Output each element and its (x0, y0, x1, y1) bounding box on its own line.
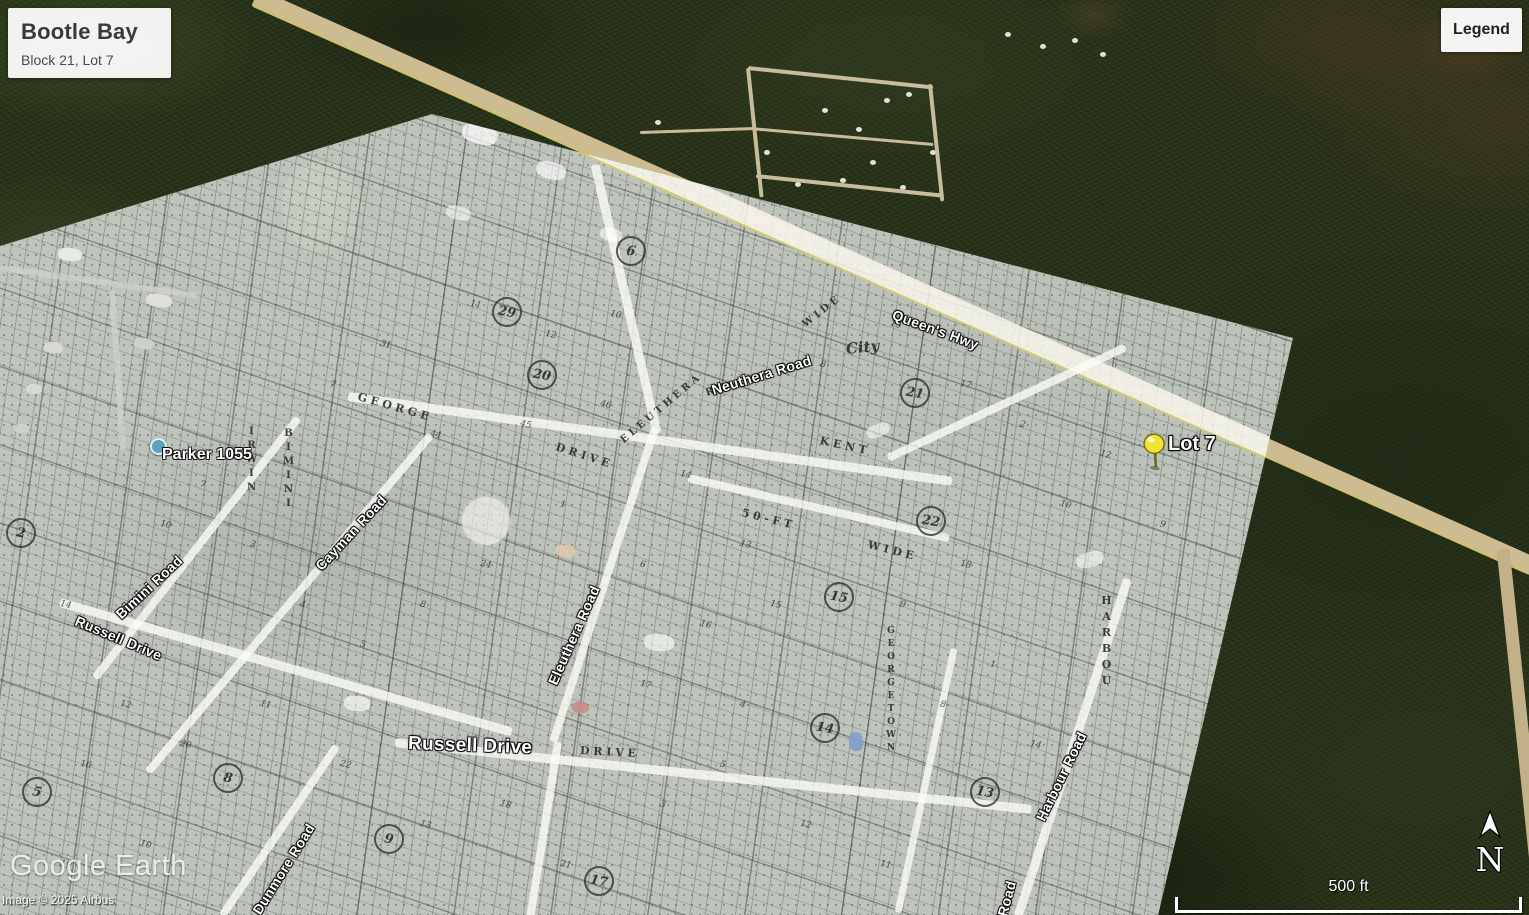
scale-bar-label: 500 ft (1175, 878, 1522, 896)
street-label: Queen's Hwy (890, 306, 981, 352)
street-label: Bimini Road (113, 552, 186, 622)
earth-canvas[interactable]: G E O R G ED R I V EE L E U T H E R AR D… (0, 0, 1529, 915)
street-label: Neuthera Road (710, 352, 814, 398)
pin-label: Lot 7 (1168, 433, 1216, 456)
scale-bar: 500 ft (1175, 878, 1522, 913)
street-label: Road (994, 879, 1019, 915)
street-label: Harbour Road (1033, 729, 1090, 823)
street-label: Russell Drive (408, 733, 533, 759)
street-label: Dunmore Road (249, 821, 318, 915)
north-arrow-icon (1468, 810, 1512, 840)
imagery-copyright: Image © 2025 Airbus (2, 893, 114, 907)
page-title: Bootle Bay (21, 19, 171, 45)
scale-bar-line (1175, 897, 1522, 913)
street-label: Russell Drive (73, 613, 165, 664)
google-earth-watermark: Google Earth (10, 850, 187, 883)
compass-north: N (1468, 810, 1512, 876)
title-card: Bootle Bay Block 21, Lot 7 (8, 8, 171, 78)
legend-button[interactable]: Legend (1441, 8, 1522, 52)
compass-n-label: N (1468, 843, 1512, 876)
page-subtitle: Block 21, Lot 7 (21, 52, 171, 68)
lot7-marker[interactable]: Lot 7 (1140, 432, 1170, 477)
parker-1055-marker[interactable]: Parker 1055 (150, 438, 167, 455)
street-label: Eleuthera Road (545, 583, 603, 687)
poi-label: Parker 1055 (162, 446, 252, 464)
street-label: Cayman Road (312, 492, 390, 574)
